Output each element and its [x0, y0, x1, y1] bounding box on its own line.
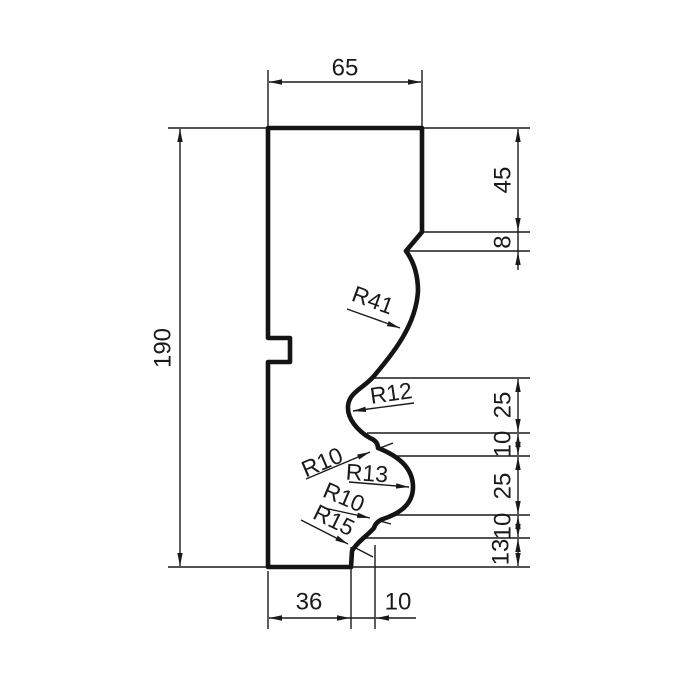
dim-bottom-10: 10 [385, 589, 412, 616]
dim-bottom-36: 36 [296, 589, 323, 616]
dim-right-13: 13 [488, 539, 515, 566]
dim-right-25a: 25 [490, 392, 517, 419]
dim-right-10a: 10 [490, 431, 517, 458]
dim-right-45: 45 [490, 167, 517, 194]
drawing-canvas: 65 190 45 8 25 10 25 10 13 36 10 R41 R12… [0, 0, 686, 686]
dim-top-width: 65 [332, 55, 359, 82]
dim-right-25b: 25 [490, 473, 517, 500]
dim-left-height: 190 [150, 328, 177, 368]
molding-profile-drawing: 65 190 45 8 25 10 25 10 13 36 10 R41 R12… [0, 0, 686, 686]
dim-right-8: 8 [490, 235, 517, 248]
radius-label-r13: R13 [345, 459, 389, 488]
dim-right-10b: 10 [490, 513, 517, 540]
